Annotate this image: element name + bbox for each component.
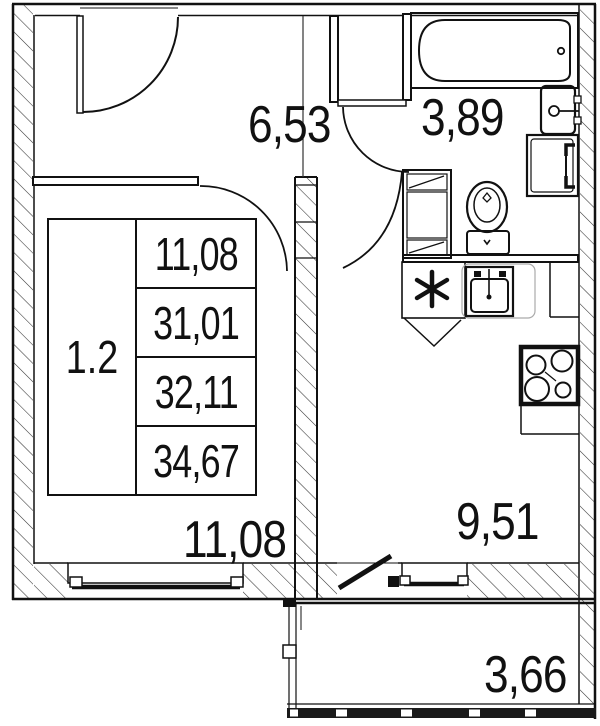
bathtub bbox=[411, 13, 578, 88]
table-row: 11,08 bbox=[137, 220, 255, 289]
bathroom-cabinet bbox=[403, 170, 451, 258]
kitchen-window bbox=[400, 563, 468, 585]
kitchen-door[interactable] bbox=[343, 172, 402, 268]
total-area-value: 34,67 bbox=[153, 438, 239, 484]
balcony-railing bbox=[287, 704, 596, 718]
hallway-area-label: 6,53 bbox=[248, 99, 331, 151]
bathroom-area-label: 3,89 bbox=[421, 92, 504, 144]
unit-number-cell: 1.2 bbox=[49, 220, 137, 494]
stove-symbol bbox=[402, 262, 465, 346]
rooms-area-value: 31,01 bbox=[153, 300, 239, 346]
kitchen-sink bbox=[462, 264, 535, 318]
entrance-door[interactable] bbox=[77, 16, 178, 113]
balcony-door[interactable] bbox=[337, 556, 399, 588]
table-row: 34,67 bbox=[137, 427, 255, 494]
kitchen-area-label: 9,51 bbox=[456, 496, 539, 548]
living-room-area-label: 11,08 bbox=[183, 514, 286, 566]
apartment-info-stamp: 1.2 11,08 31,01 32,11 34,67 bbox=[47, 218, 257, 496]
bathroom-sink bbox=[541, 86, 581, 134]
area-table: 11,08 31,01 32,11 34,67 bbox=[137, 220, 255, 494]
unit-number: 1.2 bbox=[66, 334, 118, 380]
toilet bbox=[467, 182, 509, 254]
bathroom-door[interactable] bbox=[338, 100, 409, 172]
floor-plan: 6,53 3,89 11,08 9,51 3,66 1.2 11,08 31,0… bbox=[0, 0, 600, 726]
reduced-total-area-value: 32,11 bbox=[154, 369, 237, 415]
washing-machine bbox=[527, 135, 578, 196]
table-row: 32,11 bbox=[137, 358, 255, 427]
hob-4-burners bbox=[521, 347, 578, 404]
balcony-area-label: 3,66 bbox=[484, 649, 567, 701]
table-row: 31,01 bbox=[137, 289, 255, 358]
living-area-value: 11,08 bbox=[154, 231, 237, 277]
